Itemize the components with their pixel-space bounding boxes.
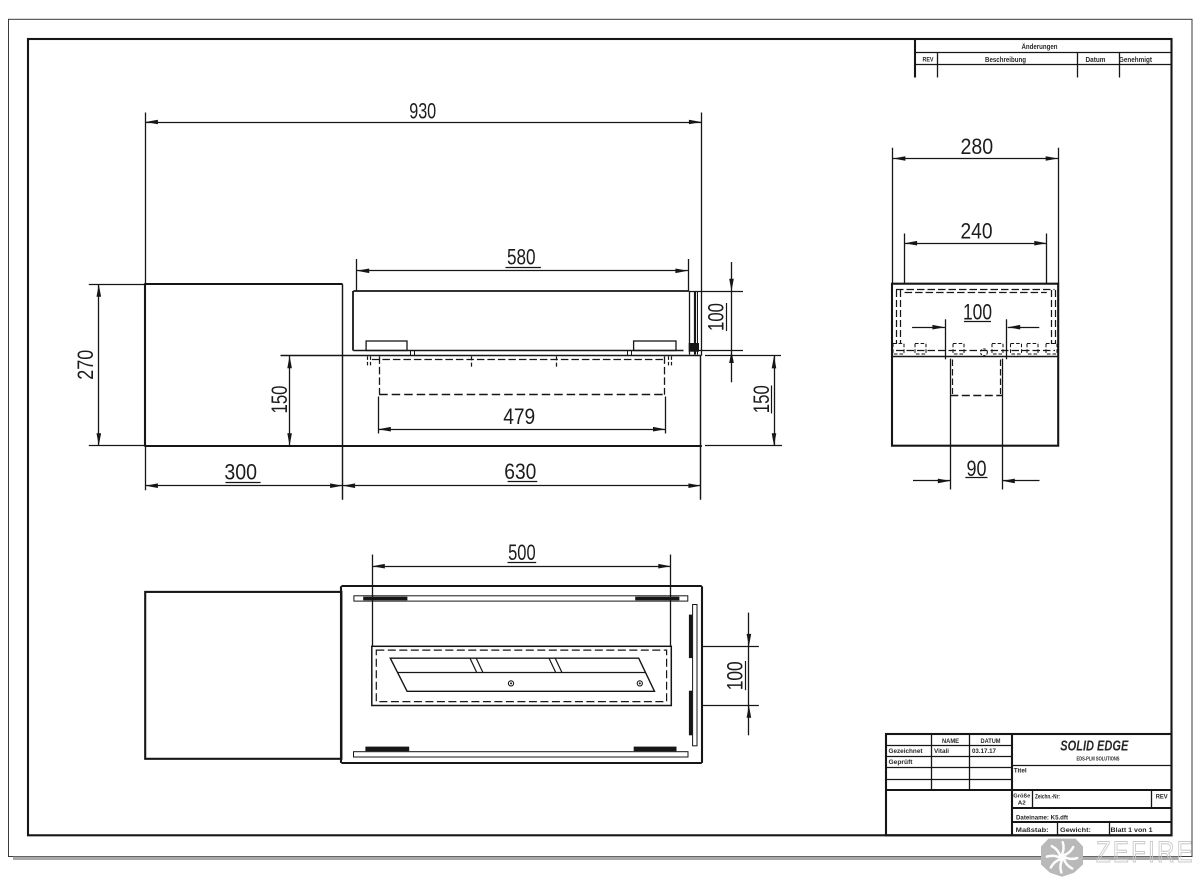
svg-text:DATUM: DATUM	[981, 738, 1001, 745]
svg-text:Gezeichnet: Gezeichnet	[889, 748, 924, 755]
svg-text:A2: A2	[1018, 801, 1026, 807]
svg-text:Gewicht:: Gewicht:	[1060, 827, 1091, 834]
svg-text:SOLID EDGE: SOLID EDGE	[1060, 739, 1129, 755]
svg-text:100: 100	[963, 299, 992, 324]
svg-text:930: 930	[409, 98, 436, 123]
svg-text:150: 150	[749, 385, 774, 413]
svg-text:Titel: Titel	[1014, 768, 1027, 775]
svg-text:REV: REV	[923, 57, 935, 64]
svg-text:150: 150	[267, 386, 292, 414]
svg-text:REV: REV	[1156, 793, 1169, 800]
svg-text:479: 479	[503, 404, 535, 429]
svg-text:Größe: Größe	[1013, 793, 1031, 799]
svg-text:240: 240	[961, 219, 993, 244]
svg-text:100: 100	[723, 661, 748, 690]
svg-text:Beschreibung: Beschreibung	[985, 57, 1026, 64]
svg-text:EDS-PLM SOLUTIONS: EDS-PLM SOLUTIONS	[1077, 757, 1120, 763]
svg-text:ZEFIRE: ZEFIRE	[1096, 836, 1195, 869]
svg-text:03.17.17: 03.17.17	[972, 748, 996, 755]
svg-text:300: 300	[224, 460, 257, 485]
svg-text:270: 270	[73, 350, 98, 380]
svg-text:Blatt 1 von 1: Blatt 1 von 1	[1111, 827, 1153, 834]
svg-text:Maßstab:: Maßstab:	[1016, 827, 1049, 834]
svg-text:500: 500	[508, 540, 536, 565]
svg-text:Dateiname: K5.dft: Dateiname: K5.dft	[1016, 814, 1069, 821]
svg-text:280: 280	[960, 134, 993, 159]
svg-text:Änderungen: Änderungen	[1022, 42, 1058, 51]
svg-text:Vitali: Vitali	[934, 748, 949, 755]
svg-text:NAME: NAME	[942, 738, 959, 745]
svg-text:580: 580	[507, 245, 536, 270]
svg-text:Geprüft: Geprüft	[889, 759, 914, 766]
svg-text:Zeichn.-Nr:: Zeichn.-Nr:	[1035, 793, 1060, 800]
svg-text:630: 630	[504, 459, 536, 484]
svg-text:Genehmigt: Genehmigt	[1119, 57, 1153, 64]
svg-text:100: 100	[704, 303, 729, 331]
svg-text:Datum: Datum	[1086, 57, 1106, 64]
